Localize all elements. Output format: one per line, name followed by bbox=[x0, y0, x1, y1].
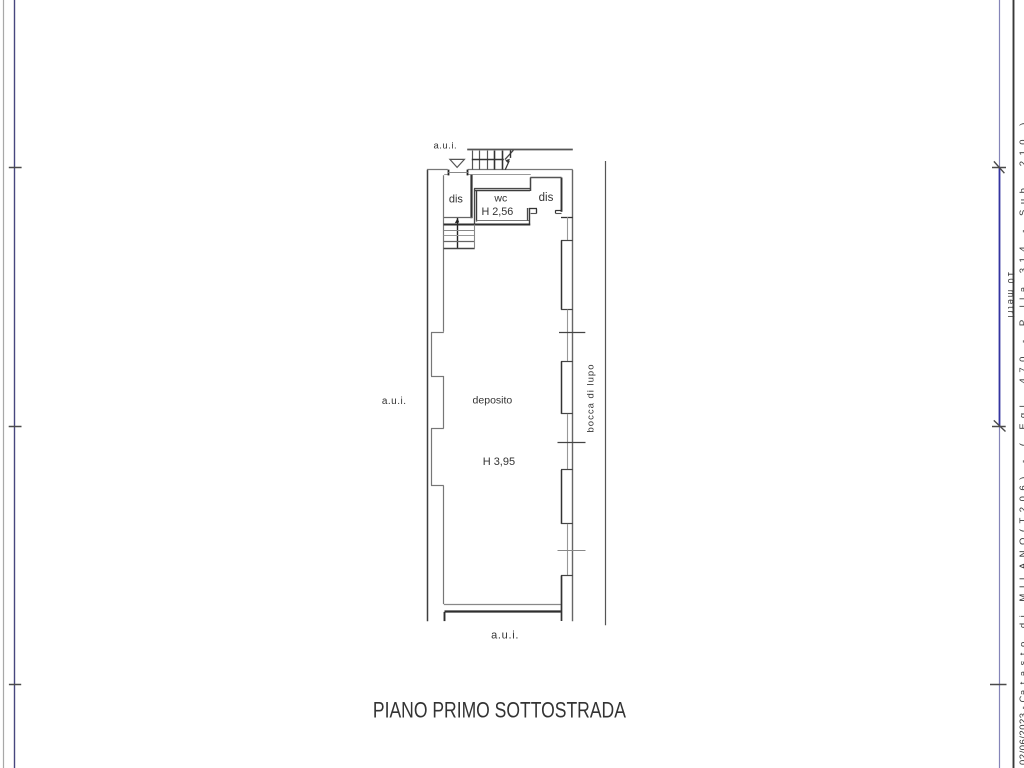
svg-text:deposito: deposito bbox=[473, 394, 513, 406]
svg-text:dis: dis bbox=[539, 192, 554, 204]
svg-text:H 2,56: H 2,56 bbox=[481, 206, 513, 218]
svg-text:wc: wc bbox=[493, 193, 507, 205]
svg-text:10 metri: 10 metri bbox=[1006, 272, 1016, 318]
svg-text:dis: dis bbox=[449, 193, 464, 205]
svg-text:a.u.i.: a.u.i. bbox=[491, 630, 519, 642]
svg-text:bocca di lupo: bocca di lupo bbox=[585, 364, 596, 433]
svg-text:a.u.i.: a.u.i. bbox=[382, 396, 407, 407]
svg-text:PIANO PRIMO SOTTOSTRADA: PIANO PRIMO SOTTOSTRADA bbox=[373, 697, 626, 722]
svg-text:H 3,95: H 3,95 bbox=[483, 456, 515, 468]
svg-text:02/06/2023 - Catasto di MILANO: 02/06/2023 - Catasto di MILANO(T206) - (… bbox=[1018, 117, 1024, 765]
svg-text:a.u.i.: a.u.i. bbox=[433, 140, 457, 151]
